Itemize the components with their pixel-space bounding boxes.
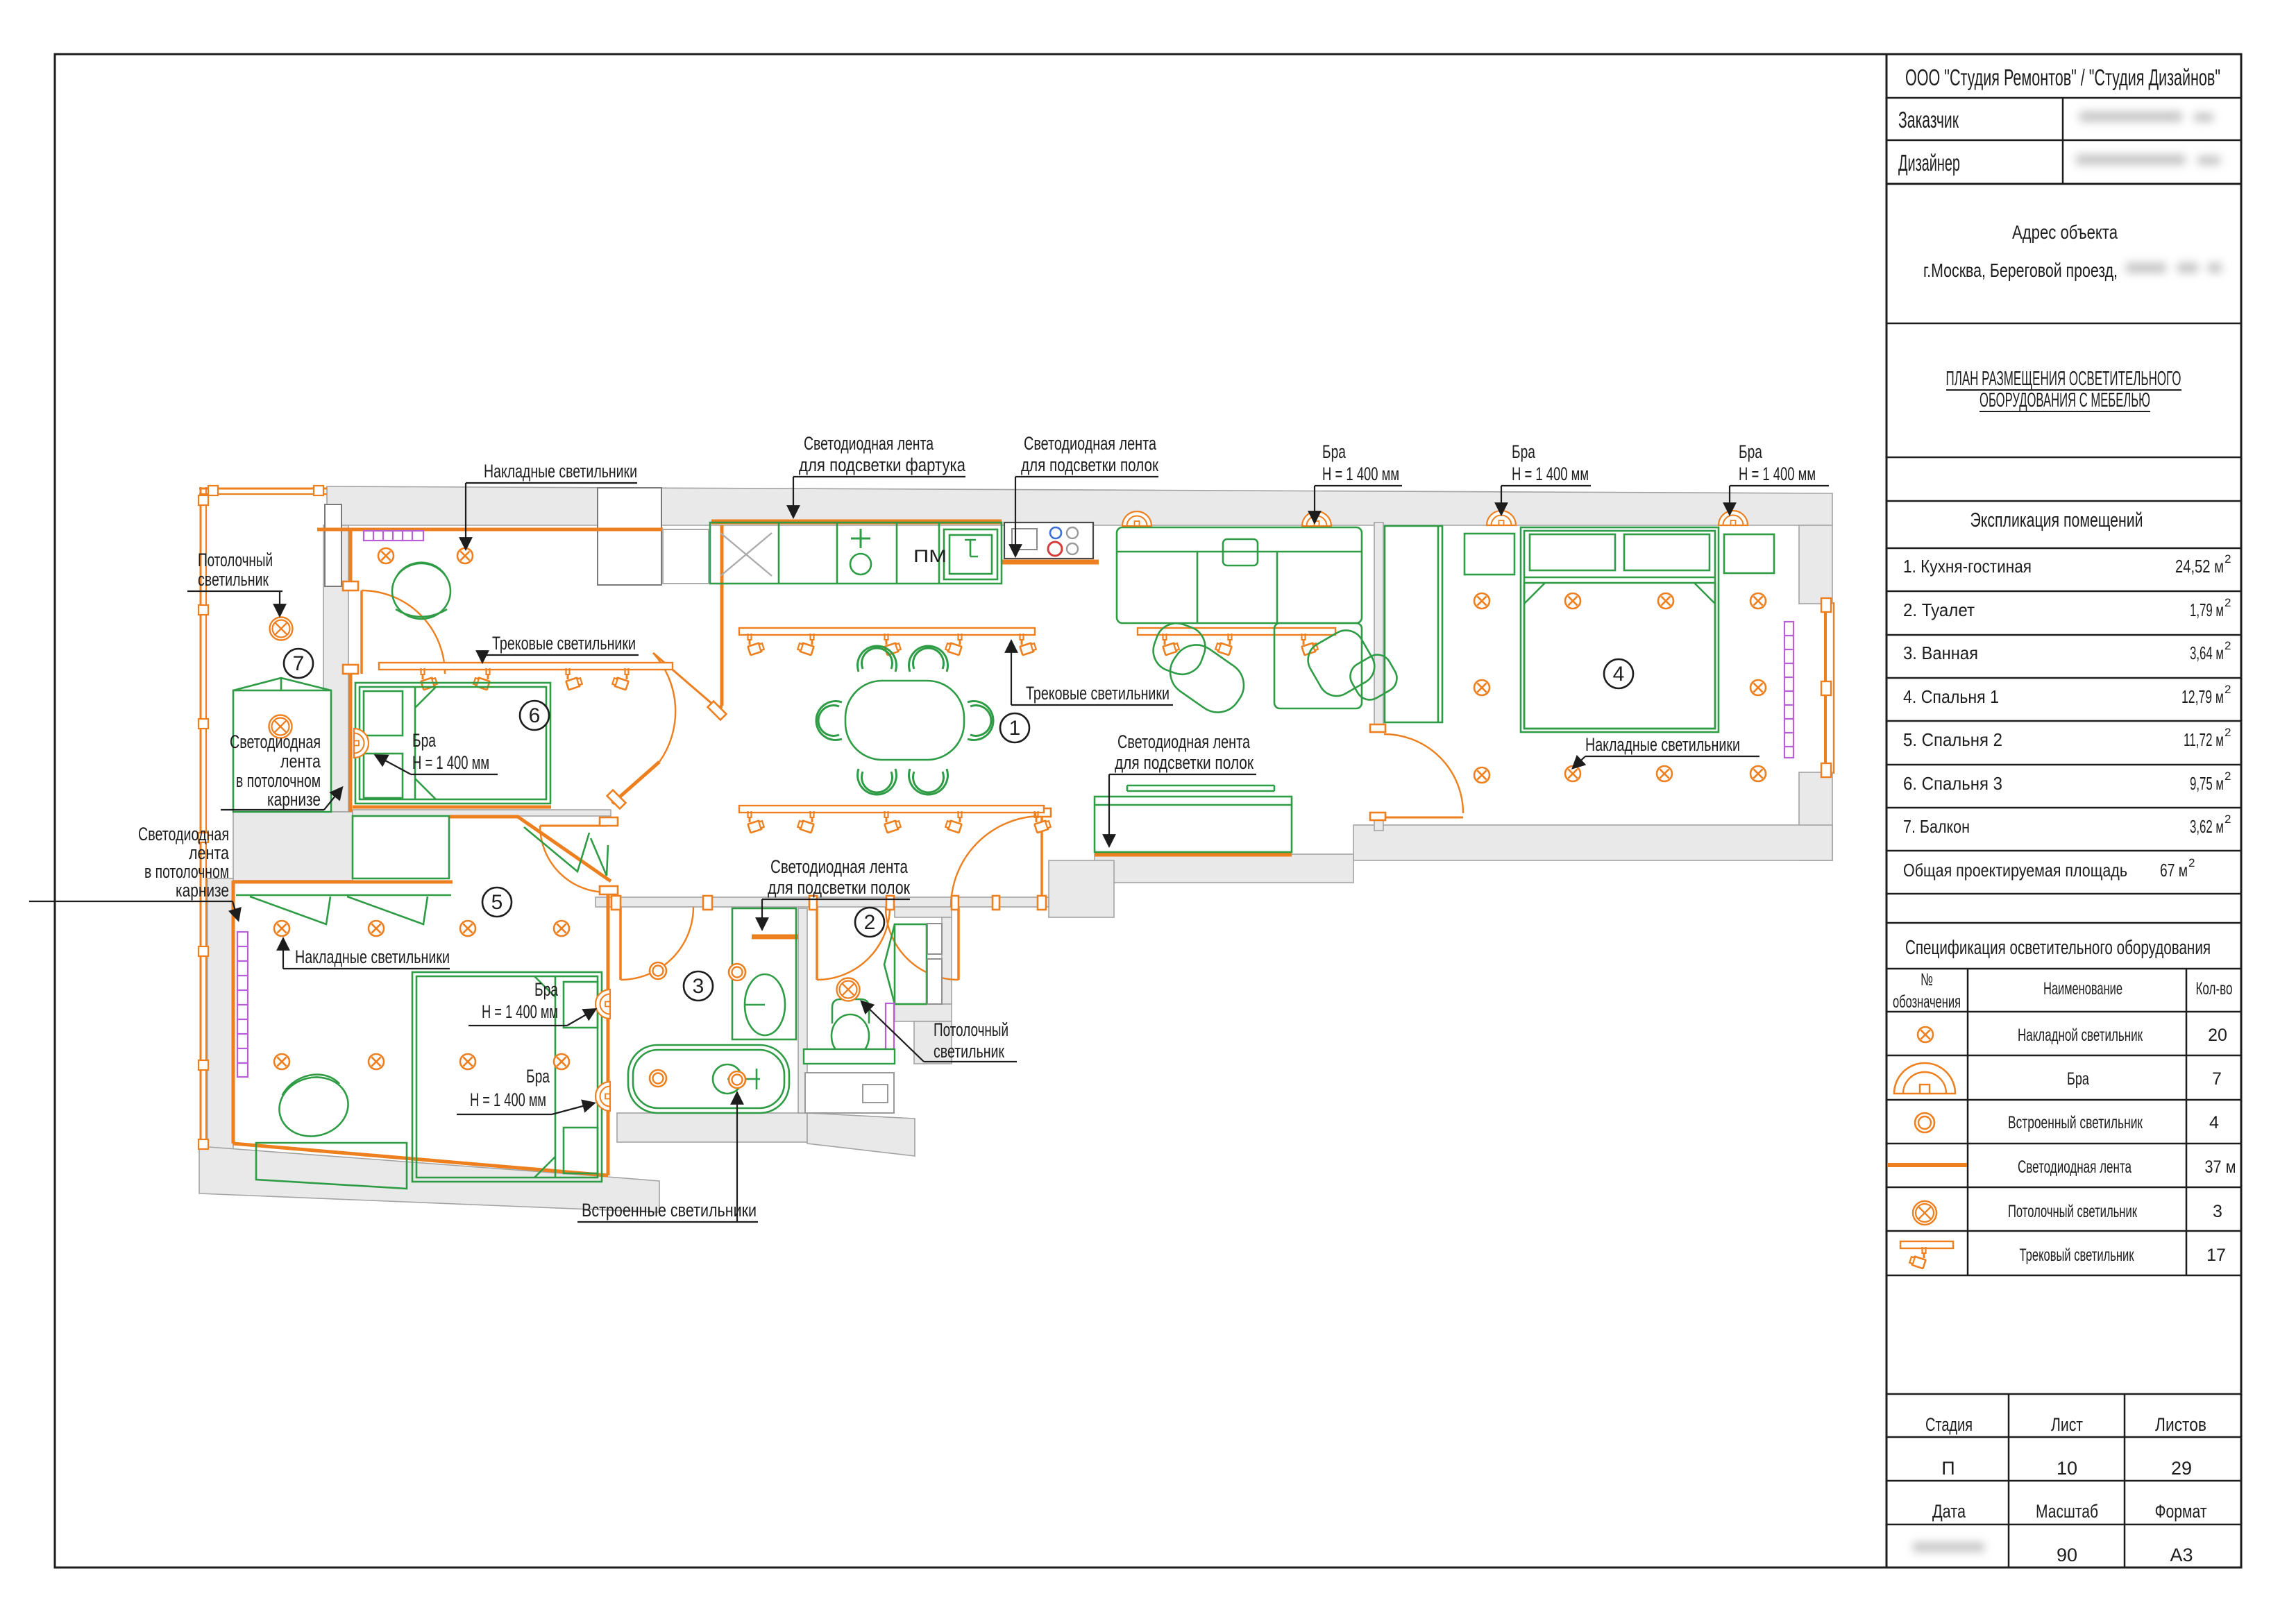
svg-text:Масштаб: Масштаб	[2036, 1501, 2098, 1522]
svg-text:Трековые светильники: Трековые светильники	[492, 633, 636, 654]
svg-text:3,62 м: 3,62 м	[2190, 816, 2224, 837]
svg-text:Встроенный светильник: Встроенный светильник	[2008, 1113, 2143, 1132]
svg-text:в потолочном: в потолочном	[236, 770, 321, 791]
svg-text:Бра: Бра	[534, 979, 559, 1000]
svg-text:7: 7	[293, 652, 305, 675]
svg-text:Н = 1 400 мм: Н = 1 400 мм	[482, 1001, 558, 1022]
svg-text:Н = 1 400 мм: Н = 1 400 мм	[1739, 464, 1816, 484]
svg-text:А3: А3	[2170, 1545, 2193, 1565]
svg-text:П: П	[1941, 1458, 1955, 1479]
svg-text:1,79 м: 1,79 м	[2190, 600, 2224, 620]
svg-text:лента: лента	[189, 842, 230, 863]
svg-text:Потолочный светильник: Потолочный светильник	[2008, 1202, 2138, 1221]
svg-text:Светодиодная лента: Светодиодная лента	[1117, 731, 1251, 752]
svg-text:Накладные светильники: Накладные светильники	[295, 946, 450, 967]
svg-text:Бра: Бра	[2067, 1069, 2089, 1089]
svg-text:1. Кухня-гостиная: 1. Кухня-гостиная	[1903, 556, 2032, 577]
svg-text:ПЛАН РАЗМЕЩЕНИЯ ОСВЕТИТЕЛЬНОГО: ПЛАН РАЗМЕЩЕНИЯ ОСВЕТИТЕЛЬНОГО	[1946, 368, 2181, 390]
svg-text:17: 17	[2206, 1246, 2226, 1265]
svg-text:Бра: Бра	[1322, 441, 1347, 462]
svg-text:ООО "Студия Ремонтов" / "Студи: ООО "Студия Ремонтов" / "Студия Дизайнов…	[1905, 65, 2220, 90]
svg-text:3: 3	[2213, 1202, 2222, 1221]
svg-text:3: 3	[693, 975, 704, 998]
svg-text:2: 2	[2225, 552, 2231, 566]
svg-text:5. Спальня 2: 5. Спальня 2	[1903, 729, 2002, 750]
svg-text:20: 20	[2208, 1026, 2227, 1045]
svg-text:для подсветки полок: для подсветки полок	[768, 877, 910, 898]
svg-text:1: 1	[1009, 717, 1021, 740]
svg-text:2: 2	[2225, 596, 2231, 609]
svg-text:10: 10	[2057, 1458, 2077, 1479]
svg-text:светильник: светильник	[934, 1041, 1004, 1062]
svg-text:Встроенные светильники: Встроенные светильники	[582, 1200, 757, 1221]
svg-text:7. Балкон: 7. Балкон	[1903, 816, 1970, 837]
svg-text:Н = 1 400 мм: Н = 1 400 мм	[412, 752, 489, 773]
svg-text:Н = 1 400 мм: Н = 1 400 мм	[1512, 464, 1589, 484]
svg-text:Трековые светильники: Трековые светильники	[1026, 683, 1170, 704]
svg-text:Заказчик: Заказчик	[1898, 107, 1959, 133]
svg-text:№: №	[1921, 970, 1933, 989]
svg-text:для подсветки полок: для подсветки полок	[1115, 752, 1253, 773]
svg-text:Дизайнер: Дизайнер	[1898, 150, 1960, 176]
svg-text:Н = 1 400 мм: Н = 1 400 мм	[1322, 464, 1399, 484]
svg-text:67 м: 67 м	[2160, 860, 2188, 881]
svg-text:Н = 1 400 мм: Н = 1 400 мм	[470, 1089, 546, 1110]
svg-text:2: 2	[864, 911, 876, 934]
svg-text:Накладные светильники: Накладные светильники	[1585, 734, 1740, 755]
svg-text:37 м: 37 м	[2205, 1157, 2236, 1177]
svg-text:Бра: Бра	[1739, 441, 1763, 462]
svg-text:Листов: Листов	[2155, 1414, 2206, 1435]
svg-text:ОБОРУДОВАНИЯ С МЕБЕЛЬЮ: ОБОРУДОВАНИЯ С МЕБЕЛЬЮ	[1980, 389, 2150, 411]
svg-text:Светодиодная лента: Светодиодная лента	[804, 433, 934, 454]
svg-text:Светодиодная: Светодиодная	[138, 824, 229, 844]
svg-text:4: 4	[1613, 663, 1625, 686]
svg-text:90: 90	[2057, 1545, 2077, 1565]
svg-text:9,75 м: 9,75 м	[2190, 773, 2224, 794]
svg-text:карнизе: карнизе	[267, 789, 321, 810]
svg-text:Потолочный: Потолочный	[198, 550, 273, 570]
svg-text:карнизе: карнизе	[176, 880, 229, 901]
svg-text:5: 5	[491, 891, 503, 914]
svg-text:Экспликация помещений: Экспликация помещений	[1970, 509, 2143, 532]
svg-text:в потолочном: в потолочном	[144, 861, 229, 882]
svg-text:Светодиодная лента: Светодиодная лента	[2018, 1157, 2132, 1177]
svg-text:Стадия: Стадия	[1925, 1414, 1973, 1435]
svg-text:24,52 м: 24,52 м	[2175, 556, 2224, 577]
svg-text:12,79 м: 12,79 м	[2181, 686, 2224, 707]
svg-text:для подсветки фартука: для подсветки фартука	[799, 454, 966, 475]
svg-text:11,72 м: 11,72 м	[2184, 729, 2224, 750]
svg-text:Дата: Дата	[1932, 1501, 1966, 1522]
svg-text:Бра: Бра	[1512, 441, 1536, 462]
svg-text:Общая проектируемая площадь: Общая проектируемая площадь	[1903, 860, 2127, 881]
svg-text:ПМ: ПМ	[913, 547, 947, 566]
svg-text:29: 29	[2171, 1458, 2192, 1479]
svg-text:6: 6	[529, 704, 541, 727]
svg-text:2: 2	[2225, 683, 2231, 696]
svg-text:Лист: Лист	[2051, 1414, 2083, 1435]
svg-text:2: 2	[2225, 639, 2231, 652]
svg-text:2: 2	[2225, 770, 2231, 783]
svg-text:Наименование: Наименование	[2043, 979, 2122, 999]
svg-text:Адрес объекта: Адрес объекта	[2012, 221, 2118, 243]
svg-text:Светодиодная лента: Светодиодная лента	[1024, 433, 1157, 454]
svg-text:2: 2	[2188, 856, 2195, 869]
svg-text:4. Спальня 1: 4. Спальня 1	[1903, 686, 1999, 707]
svg-text:7: 7	[2212, 1069, 2222, 1089]
svg-text:Накладной светильник: Накладной светильник	[2018, 1026, 2143, 1045]
svg-text:2: 2	[2225, 813, 2231, 826]
svg-text:Бра: Бра	[412, 730, 437, 751]
svg-text:Бра: Бра	[526, 1066, 550, 1087]
svg-text:2: 2	[2225, 726, 2231, 739]
svg-text:Формат: Формат	[2155, 1501, 2207, 1522]
svg-text:для подсветки полок: для подсветки полок	[1021, 454, 1158, 475]
svg-text:лента: лента	[280, 751, 321, 772]
svg-text:Накладные светильники: Накладные светильники	[484, 461, 637, 482]
svg-text:Светодиодная: Светодиодная	[230, 731, 321, 752]
svg-text:обозначения: обозначения	[1893, 992, 1961, 1012]
svg-text:Потолочный: Потолочный	[934, 1019, 1008, 1040]
svg-text:Кол-во: Кол-во	[2196, 979, 2233, 999]
svg-text:3,64 м: 3,64 м	[2190, 643, 2224, 663]
svg-text:Спецификация осветительного об: Спецификация осветительного оборудования	[1905, 937, 2211, 959]
svg-text:2. Туалет: 2. Туалет	[1903, 600, 1975, 620]
svg-text:светильник: светильник	[198, 569, 269, 590]
svg-text:6. Спальня 3: 6. Спальня 3	[1903, 773, 2002, 794]
svg-text:г.Москва, Береговой проезд,: г.Москва, Береговой проезд,	[1923, 260, 2118, 281]
svg-text:Трековый светильник: Трековый светильник	[2020, 1246, 2135, 1265]
svg-text:Светодиодная лента: Светодиодная лента	[770, 856, 909, 877]
svg-text:3. Ванная: 3. Ванная	[1903, 643, 1978, 663]
svg-text:4: 4	[2209, 1113, 2219, 1132]
